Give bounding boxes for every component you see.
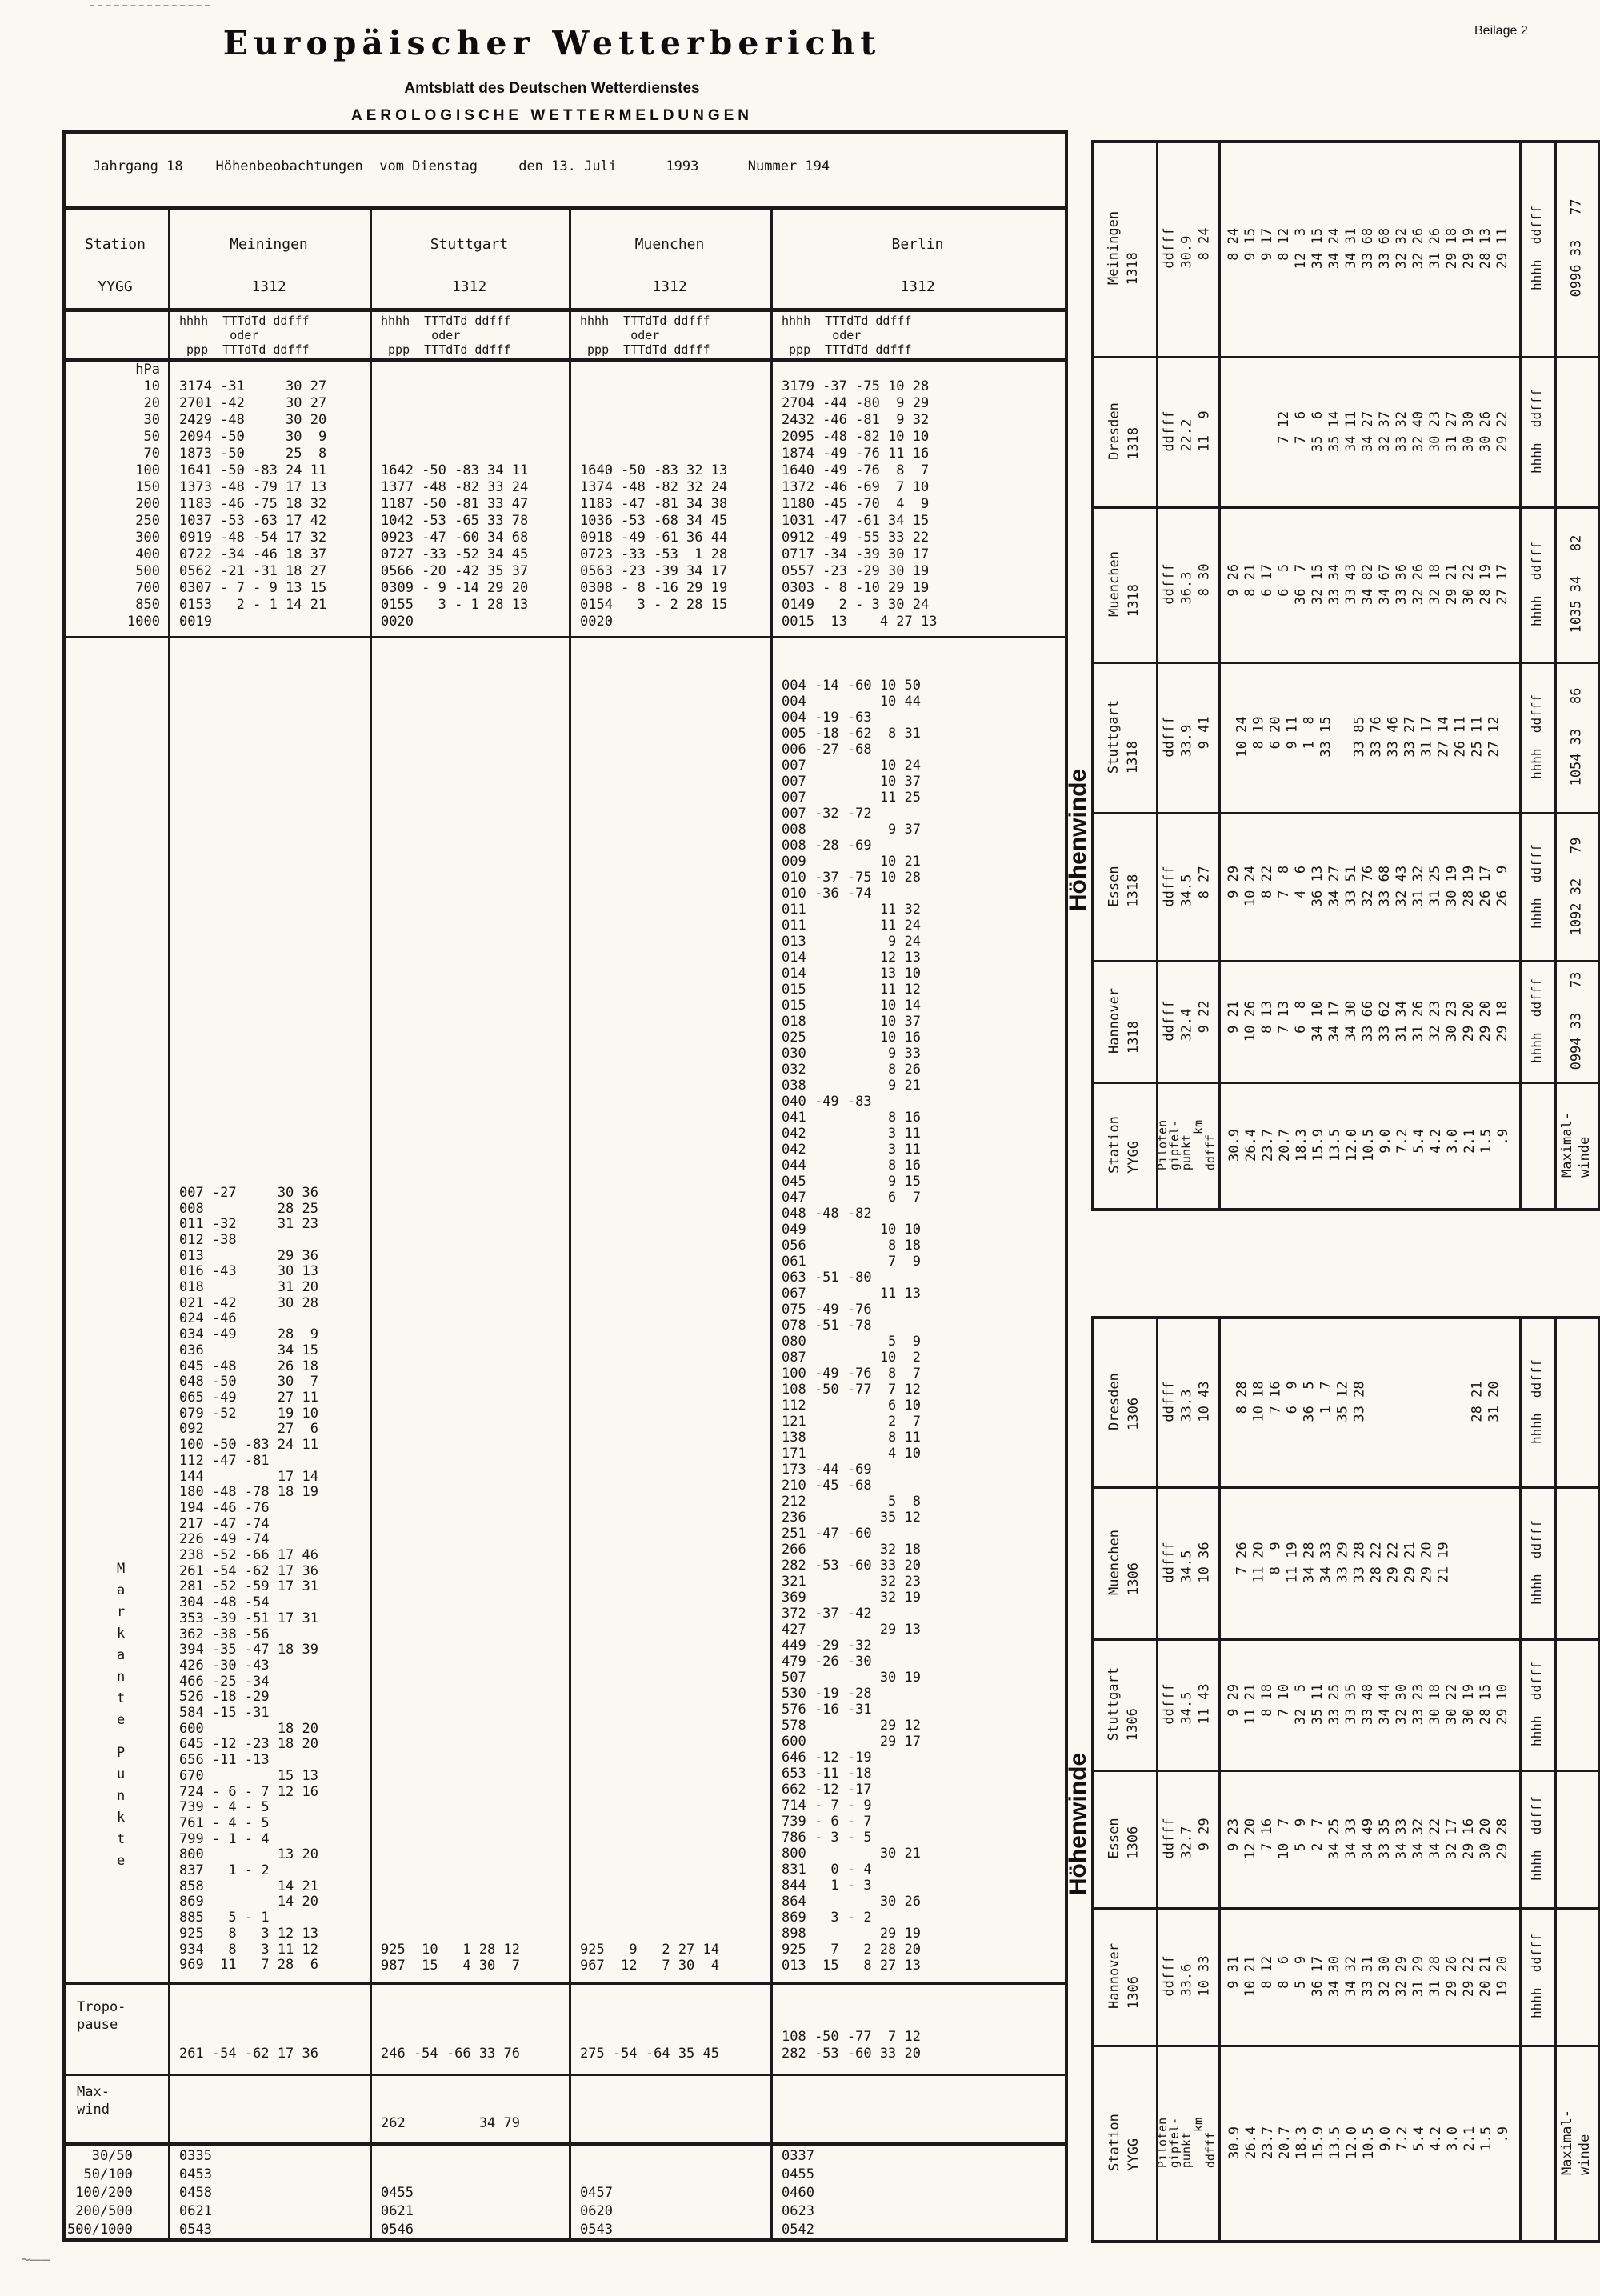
section-heading: AEROLOGISCHE WETTERMELDUNGEN: [0, 107, 1104, 125]
wind-station-name-text: Muenchen 1306: [1105, 1530, 1143, 1595]
wind-pairs-text: 7 12 7 6 35 6 35 14 34 11 34 27 32 37 33…: [1226, 410, 1512, 451]
subheader-cell: hhhh TTTdTd ddfff oder ppp TTTdTd ddfff: [782, 314, 912, 357]
layer-data: 0457 0620 0543: [580, 2147, 613, 2239]
wind-pairs-text: 9 26 8 21 6 17 6 5 36 7 32 15 33 34 33 4…: [1226, 563, 1512, 604]
wind-tail-label-text: hhhh ddfff: [1529, 844, 1545, 929]
points-cell: 007 -27 30 36 008 28 25 011 -32 31 23 01…: [179, 636, 368, 1982]
wind-tail-label: hhhh ddfff: [1519, 1907, 1554, 2045]
wind-station-name: Dresden 1306: [1091, 1316, 1156, 1486]
wind-max-value: 1092 32 79: [1554, 812, 1598, 960]
tropopause-data: 246 -54 -66 33 76: [381, 2046, 520, 2062]
wind-max-value: 0994 33 73: [1554, 960, 1598, 1082]
wind-pairs-text: 7 26 11 20 8 9 11 19 34 28 34 33 33 29 3…: [1234, 1542, 1503, 1582]
tropopause-data: 275 -54 -64 35 45: [580, 2046, 719, 2062]
points-cell: 925 9 2 27 14 967 12 7 30 4: [580, 636, 769, 1982]
legend-station-label-text: Station YYGG: [1105, 1116, 1143, 1174]
table-border: [62, 206, 1065, 210]
wind-ddfff-header-text: ddfff 30.9 8 24: [1161, 227, 1214, 268]
legend-piloten-label: Piloten gipfel- punkt km ddfff: [1156, 2045, 1218, 2240]
table-border: [62, 130, 1065, 134]
wind-ddfff-header-text: ddfff 33.3 10 43: [1161, 1381, 1214, 1422]
legend-piloten-label: Piloten gipfel- punkt km ddfff: [1156, 1082, 1218, 1208]
wind-station-name-text: Dresden 1318: [1105, 402, 1143, 460]
wind-max-value: 1035 34 82: [1554, 506, 1598, 662]
wind-tail-label: hhhh ddfff: [1519, 140, 1554, 356]
wind-station-name-text: Muenchen 1318: [1105, 551, 1143, 617]
hoehenwinde-label-text: Höhenwinde: [1065, 769, 1092, 911]
table-border: [62, 308, 1065, 312]
scanned-weather-bulletin-page: Europäischer Wetterbericht Amtsblatt des…: [0, 0, 1600, 2296]
wind-ddfff-header-text: ddfff 34.5 10 36: [1161, 1542, 1214, 1582]
legend-station-label: Station YYGG: [1091, 2045, 1156, 2240]
meta-line: Jahrgang 18 Höhenbeobachtungen vom Diens…: [93, 158, 830, 174]
wind-station-name-text: Hannover 1306: [1105, 1943, 1143, 2009]
wind-tail-label-text: hhhh ddfff: [1529, 1796, 1545, 1881]
wind-ddfff-header: ddfff 33.9 9 41: [1156, 662, 1218, 812]
wind-tail-label-text: hhhh ddfff: [1529, 1934, 1545, 2018]
wind-pairs-text: 9 23 12 20 7 16 10 7 5 9 2 7 34 25 34 33…: [1226, 1818, 1512, 1858]
table-border: [62, 130, 66, 2242]
station-name: Muenchen: [569, 236, 770, 253]
legend-piloten-label-text: Piloten gipfel- punkt km ddfff: [1158, 2117, 1218, 2167]
wind-pairs: 9 21 10 26 8 13 7 13 6 8 34 10 34 17 34 …: [1218, 960, 1519, 1082]
wind-station-name: Hannover 1318: [1091, 960, 1156, 1082]
legend-station-label-text: Station YYGG: [1105, 2114, 1143, 2171]
wind-max-value: 1054 33 86: [1554, 662, 1598, 812]
wind-pairs-text: 8 24 9 15 9 17 8 12 12 3 34 15 34 24 34 …: [1226, 227, 1512, 268]
table-border: [62, 2142, 1065, 2146]
wind-tail-label-text: hhhh ddfff: [1529, 1662, 1545, 1746]
pressure-data: 3174 -31 30 27 2701 -42 30 27 2429 -48 3…: [179, 362, 326, 630]
station-time: 1312: [569, 278, 770, 295]
wind-pairs-text: 9 29 11 21 8 18 7 10 32 5 35 11 33 25 33…: [1226, 1683, 1512, 1724]
wind-tail-label-text: hhhh ddfff: [1529, 694, 1545, 779]
wind-ddfff-header: ddfff 34.5 8 27: [1156, 812, 1218, 960]
wind-max-value-text: 1092 32 79: [1568, 837, 1584, 935]
station-time: 1312: [370, 278, 569, 295]
wind-tail-label: hhhh ddfff: [1519, 960, 1554, 1082]
wind-station-name-text: Stuttgart 1318: [1105, 700, 1143, 774]
legend-piloten-label-text: Piloten gipfel- punkt km ddfff: [1158, 1119, 1218, 1170]
wind-ddfff-header-text: ddfff 22.2 11 9: [1161, 410, 1214, 451]
wind-ddfff-header: ddfff 22.2 11 9: [1156, 356, 1218, 506]
points-data: 004 -14 -60 10 50 004 10 44 004 -19 -63 …: [782, 678, 921, 1974]
wind-tail-label: hhhh ddfff: [1519, 812, 1554, 960]
wind-tail-label: hhhh ddfff: [1519, 1638, 1554, 1770]
legend-heights-text: 30.9 26.4 23.7 20.7 18.3 15.9 13.5 12.0 …: [1226, 2126, 1511, 2159]
points-data: 925 10 1 28 12 987 15 4 30 7: [381, 1942, 520, 1974]
legend-maximal-label: Maximal- winde: [1554, 2045, 1598, 2240]
page-title: Europäischer Wetterbericht: [0, 24, 1104, 62]
wind-pairs: 9 26 8 21 6 17 6 5 36 7 32 15 33 34 33 4…: [1218, 506, 1519, 662]
wind-station-name: Essen 1306: [1091, 1770, 1156, 1907]
wind-tail-label: hhhh ddfff: [1519, 356, 1554, 506]
table-border: [1091, 2240, 1598, 2243]
maxwind-data: 262 34 79: [381, 2115, 520, 2131]
points-data: 007 -27 30 36 008 28 25 011 -32 31 23 01…: [179, 1186, 318, 1974]
beilage-label: Beilage 2: [1474, 24, 1528, 38]
wind-station-name-text: Essen 1306: [1105, 1818, 1143, 1858]
wind-tail-label: hhhh ddfff: [1519, 662, 1554, 812]
station-col-yygg: YYGG: [62, 278, 168, 295]
wind-pairs: 8 24 9 15 9 17 8 12 12 3 34 15 34 24 34 …: [1218, 140, 1519, 356]
wind-ddfff-header: ddfff 32.4 9 22: [1156, 960, 1218, 1082]
markante-label: M a r k a n t e: [117, 1558, 125, 1731]
pressure-data: 1642 -50 -83 34 11 1377 -48 -82 33 24 11…: [381, 362, 528, 630]
wind-station-name: Muenchen 1318: [1091, 506, 1156, 662]
wind-pairs: 9 29 11 21 8 18 7 10 32 5 35 11 33 25 33…: [1218, 1638, 1519, 1770]
wind-pairs-text: 9 29 10 24 8 22 7 8 4 6 36 13 34 27 33 5…: [1226, 866, 1512, 906]
station-col-title: Station: [62, 236, 168, 253]
legend-heights: 30.9 26.4 23.7 20.7 18.3 15.9 13.5 12.0 …: [1218, 1082, 1519, 1208]
subheader-cell: hhhh TTTdTd ddfff oder ppp TTTdTd ddfff: [381, 314, 511, 357]
wind-max-value-text: 1054 33 86: [1568, 688, 1584, 786]
hpa-scale: hPa 10 20 30 50 70 100 150 200 250 300 4…: [70, 362, 160, 630]
wind-pairs-text: 9 21 10 26 8 13 7 13 6 8 34 10 34 17 34 …: [1226, 1000, 1512, 1041]
maxwind-label: Max- wind: [77, 2083, 110, 2118]
wind-pairs: 7 12 7 6 35 6 35 14 34 11 34 27 32 37 33…: [1218, 356, 1519, 506]
wind-max-value-text: 1035 34 82: [1568, 535, 1584, 634]
layer-data: 0335 0453 0458 0621 0543: [179, 2147, 212, 2239]
scan-artifact-top: [90, 5, 210, 6]
wind-max-value-text: 0996 33 77: [1568, 199, 1584, 298]
column-divider: [569, 206, 571, 2238]
wind-ddfff-header: ddfff 33.3 10 43: [1156, 1316, 1218, 1486]
tropopause-data: 261 -54 -62 17 36: [179, 2046, 318, 2062]
tropopause-data: 108 -50 -77 7 12 282 -53 -60 33 20: [782, 2029, 921, 2062]
wind-tail-label-text: hhhh ddfff: [1529, 389, 1545, 474]
wind-ddfff-header: ddfff 36.3 8 30: [1156, 506, 1218, 662]
table-border: [62, 2074, 1065, 2076]
wind-station-name-text: Meiningen 1318: [1105, 211, 1143, 285]
points-data: 925 9 2 27 14 967 12 7 30 4: [580, 1942, 719, 1974]
wind-max-value-text: 0994 33 73: [1568, 972, 1584, 1070]
wind-tail-label: hhhh ddfff: [1519, 1486, 1554, 1638]
wind-ddfff-header: ddfff 34.5 10 36: [1156, 1486, 1218, 1638]
wind-station-name: Stuttgart 1318: [1091, 662, 1156, 812]
station-time: 1312: [168, 278, 370, 295]
legend-station-label: Station YYGG: [1091, 1082, 1156, 1208]
subheader-cell: hhhh TTTdTd ddfff oder ppp TTTdTd ddfff: [179, 314, 310, 357]
wind-ddfff-header-text: ddfff 36.3 8 30: [1161, 563, 1214, 604]
wind-tail-label: hhhh ddfff: [1519, 1316, 1554, 1486]
wind-station-name-text: Dresden 1306: [1105, 1373, 1143, 1430]
tropopause-label: Tropo- pause: [77, 1998, 126, 2034]
wind-station-name-text: Essen 1318: [1105, 866, 1143, 906]
tropopause-cell: 261 -54 -62 17 36: [179, 1982, 368, 2074]
wind-ddfff-header-text: ddfff 34.5 11 43: [1161, 1683, 1214, 1724]
tropopause-cell: 108 -50 -77 7 12 282 -53 -60 33 20: [782, 1982, 1063, 2074]
wind-pairs: 9 29 10 24 8 22 7 8 4 6 36 13 34 27 33 5…: [1218, 812, 1519, 960]
wind-station-name: Stuttgart 1306: [1091, 1638, 1156, 1770]
wind-pairs: 9 31 10 21 8 12 8 6 5 9 36 17 34 30 34 3…: [1218, 1907, 1519, 2045]
page-subtitle: Amtsblatt des Deutschen Wetterdienstes: [0, 80, 1104, 98]
wind-ddfff-header-text: ddfff 32.4 9 22: [1161, 1000, 1214, 1041]
subheader-cell: hhhh TTTdTd ddfff oder ppp TTTdTd ddfff: [580, 314, 710, 357]
wind-tail-label-text: hhhh ddfff: [1529, 542, 1545, 626]
wind-pairs: 8 28 10 18 7 16 6 9 36 5 1 7 35 12 33 28…: [1218, 1316, 1519, 1486]
layer-data: 0455 0621 0546: [381, 2147, 414, 2239]
column-divider: [168, 206, 170, 2238]
wind-ddfff-header-text: ddfff 33.9 9 41: [1161, 716, 1214, 757]
legend-heights: 30.9 26.4 23.7 20.7 18.3 15.9 13.5 12.0 …: [1218, 2045, 1519, 2240]
layer-labels: 30/50 50/100 100/200 200/500 500/1000: [67, 2147, 133, 2239]
wind-ddfff-header-text: ddfff 33.6 10 33: [1161, 1955, 1214, 1996]
wind-station-name: Hannover 1306: [1091, 1907, 1156, 2045]
wind-ddfff-header: ddfff 33.6 10 33: [1156, 1907, 1218, 2045]
wind-station-name: Essen 1318: [1091, 812, 1156, 960]
wind-pairs: 9 23 12 20 7 16 10 7 5 9 2 7 34 25 34 33…: [1218, 1770, 1519, 1907]
hoehenwinde-label: Höhenwinde: [1064, 1696, 1093, 1952]
station-name: Meiningen: [168, 236, 370, 253]
legend-maximal-label-text: Maximal- winde: [1558, 2110, 1594, 2175]
pressure-data: 1640 -50 -83 32 13 1374 -48 -82 32 24 11…: [580, 362, 727, 630]
punkte-label: P u n k t e: [117, 1742, 125, 1872]
wind-pairs: 10 24 8 19 6 20 9 11 1 8 33 15 33 85 33 …: [1218, 662, 1519, 812]
wind-station-name: Muenchen 1306: [1091, 1486, 1156, 1638]
station-time: 1312: [770, 278, 1065, 295]
wind-ddfff-header-text: ddfff 32.7 9 29: [1161, 1818, 1214, 1858]
scan-artifact-bottom: ~——: [21, 2250, 50, 2269]
wind-pairs-text: 9 31 10 21 8 12 8 6 5 9 36 17 34 30 34 3…: [1226, 1955, 1512, 1996]
wind-tail-label-text: hhhh ddfff: [1529, 206, 1545, 290]
wind-ddfff-header: ddfff 32.7 9 29: [1156, 1770, 1218, 1907]
station-name: Stuttgart: [370, 236, 569, 253]
wind-ddfff-header: ddfff 34.5 11 43: [1156, 1638, 1218, 1770]
points-cell: 004 -14 -60 10 50 004 10 44 004 -19 -63 …: [782, 636, 1063, 1982]
hoehenwinde-label-text: Höhenwinde: [1065, 1753, 1092, 1895]
legend-heights-text: 30.9 26.4 23.7 20.7 18.3 15.9 13.5 12.0 …: [1226, 1129, 1511, 1162]
column-divider: [770, 206, 773, 2238]
column-divider: [370, 206, 372, 2238]
wind-ddfff-header-text: ddfff 34.5 8 27: [1161, 866, 1214, 906]
wind-station-name: Dresden 1318: [1091, 356, 1156, 506]
wind-station-name: Meiningen 1318: [1091, 140, 1156, 356]
wind-max-value: 0996 33 77: [1554, 140, 1598, 356]
wind-tail-label: hhhh ddfff: [1519, 1770, 1554, 1907]
wind-tail-label: hhhh ddfff: [1519, 506, 1554, 662]
wind-tail-label-text: hhhh ddfff: [1529, 1520, 1545, 1605]
layer-data: 0337 0455 0460 0623 0542: [782, 2147, 814, 2239]
wind-tail-label-text: hhhh ddfff: [1529, 1359, 1545, 1444]
hoehenwinde-label: Höhenwinde: [1064, 712, 1093, 968]
wind-pairs-text: 10 24 8 19 6 20 9 11 1 8 33 15 33 85 33 …: [1234, 716, 1503, 757]
wind-pairs: 7 26 11 20 8 9 11 19 34 28 34 33 33 29 3…: [1218, 1486, 1519, 1638]
tropopause-cell: 246 -54 -66 33 76: [381, 1982, 567, 2074]
table-border: [62, 2238, 1065, 2242]
legend-maximal-label: Maximal- winde: [1554, 1082, 1598, 1208]
pressure-data: 3179 -37 -75 10 28 2704 -44 -80 9 29 243…: [782, 362, 937, 630]
station-name: Berlin: [770, 236, 1065, 253]
legend-maximal-label-text: Maximal- winde: [1558, 1112, 1594, 1178]
wind-pairs-text: 8 28 10 18 7 16 6 9 36 5 1 7 35 12 33 28…: [1234, 1381, 1503, 1422]
points-cell: 925 10 1 28 12 987 15 4 30 7: [381, 636, 567, 1982]
wind-station-name-text: Stuttgart 1306: [1105, 1667, 1143, 1741]
wind-tail-label-text: hhhh ddfff: [1529, 978, 1545, 1063]
tropopause-cell: 275 -54 -64 35 45: [580, 1982, 769, 2074]
wind-ddfff-header: ddfff 30.9 8 24: [1156, 140, 1218, 356]
wind-station-name-text: Hannover 1318: [1105, 988, 1143, 1054]
table-border: [1091, 1208, 1598, 1211]
